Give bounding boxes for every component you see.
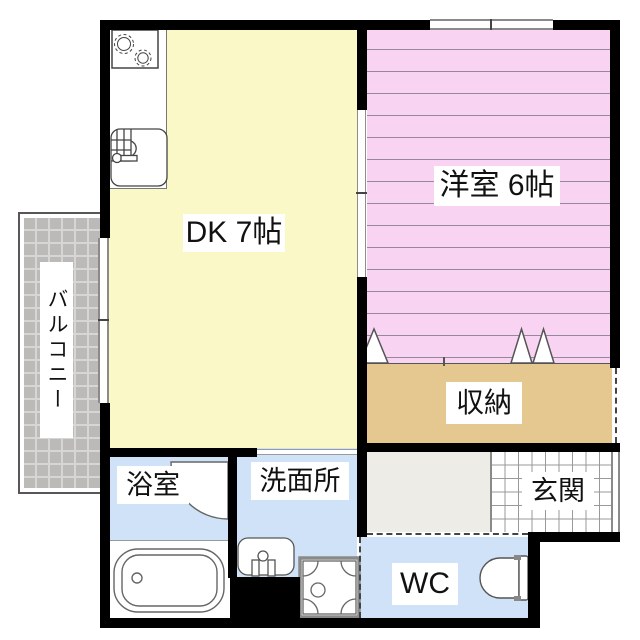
washbasin-icon [238,538,294,576]
window-balcony-tick [98,319,109,321]
closet-door-triangles-icon [360,329,554,363]
fixtures-layer [0,0,640,640]
wall-wc-right [528,532,540,628]
wall-left-upper [100,20,110,238]
wall-divider-top [357,28,367,110]
front-door [611,452,620,532]
wall-genkan-bottom [528,532,620,542]
label-storage: 収納 [446,382,522,424]
stove-burners-icon [112,30,158,68]
wall-top-left [100,20,360,30]
floor-plan: DK 7帖 洋室 6帖 収納 バルコニー 浴室 洗面所 玄関 WC [0,0,640,640]
opening-dk-washroom [257,449,357,455]
label-western: 洋室 6帖 [434,166,560,206]
wall-top-mid [360,20,430,30]
wall-bath-divider [228,452,237,578]
wall-sink-block [230,577,300,628]
sliding-door-tick [356,192,367,194]
wall-right [610,20,620,368]
label-balcony: バルコニー [40,262,73,438]
wall-bottom [100,618,540,628]
label-washroom: 洗面所 [251,462,349,500]
kitchen-sink-icon [111,129,167,186]
wall-divider-bottom [357,277,367,452]
washing-machine-pan-icon [300,558,359,617]
label-entrance: 玄関 [522,472,594,510]
wall-storage-bottom [357,443,620,452]
dashed-wc-top [367,533,528,535]
toilet-icon [480,555,528,601]
label-dk: DK 7帖 [183,214,285,252]
dashed-edge-storage [615,368,617,443]
label-bath: 浴室 [117,466,189,504]
bathtub-icon [114,549,224,612]
window-top-tick [490,19,492,30]
label-wc: WC [392,563,458,605]
dashed-wc-left [359,537,361,618]
wall-left-lower [100,403,110,628]
wall-washroom-right [357,448,367,537]
